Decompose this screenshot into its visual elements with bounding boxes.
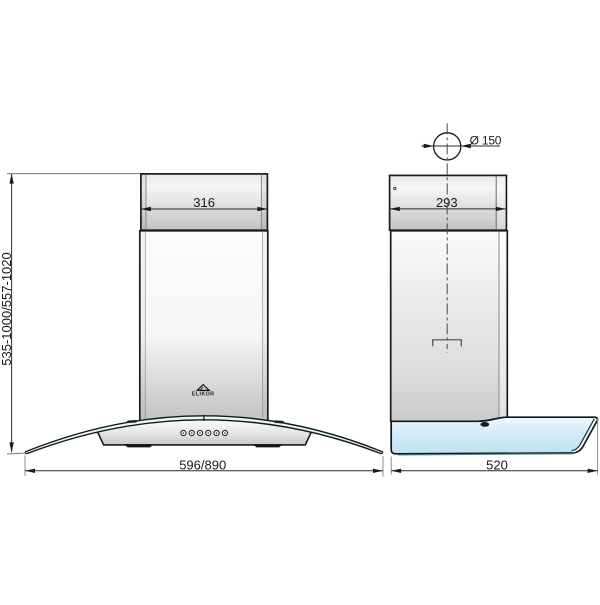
svg-text:535-1000/557-1020: 535-1000/557-1020 xyxy=(0,252,14,366)
svg-text:520: 520 xyxy=(486,457,508,472)
svg-text:Ø 150: Ø 150 xyxy=(470,133,502,147)
svg-text:596/890: 596/890 xyxy=(179,457,226,472)
svg-text:ELIKOR: ELIKOR xyxy=(192,392,215,398)
svg-text:316: 316 xyxy=(193,195,215,210)
